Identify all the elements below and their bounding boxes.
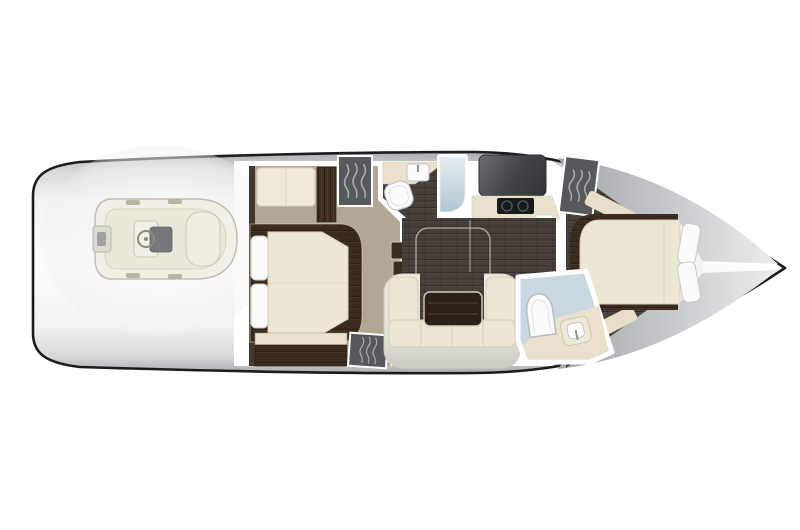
- tender-engine-cowl: [97, 232, 106, 246]
- yacht-floorplan-page: [0, 0, 800, 530]
- tender-wheel-hub: [144, 237, 148, 241]
- aft-hanging-locker: [338, 156, 372, 206]
- mid-head-shower: [437, 154, 468, 216]
- tender-dinghy: [93, 199, 237, 279]
- yacht-floorplan: [0, 0, 800, 530]
- shower-glass: [440, 157, 465, 212]
- aft-dresser-top: [255, 333, 347, 345]
- salon-table: [424, 292, 482, 326]
- aft-pillow-2: [251, 284, 268, 328]
- tender-bow-seat: [186, 212, 220, 266]
- galley-dark-countertop: [479, 155, 546, 196]
- aft-pillow-1: [251, 236, 268, 280]
- aft-wardrobe-cabinet: [317, 167, 336, 222]
- aft-dresser-cabinet: [255, 345, 347, 366]
- guest-head-sink: [559, 315, 592, 346]
- stern-platform: [40, 145, 280, 335]
- aft-hanging-locker-2: [348, 333, 388, 369]
